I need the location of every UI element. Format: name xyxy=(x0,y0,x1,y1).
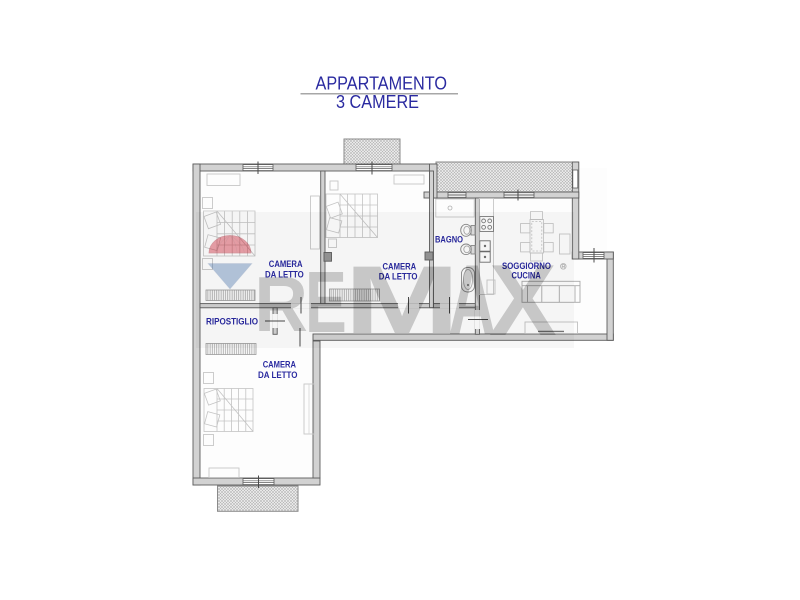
svg-text:X: X xyxy=(489,244,557,357)
svg-text:M: M xyxy=(344,247,460,354)
svg-text:R: R xyxy=(254,260,308,348)
svg-text:DA LETTO: DA LETTO xyxy=(258,370,298,380)
svg-text:CAMERA: CAMERA xyxy=(263,360,297,370)
svg-text:E: E xyxy=(305,253,347,351)
svg-text:3 CAMERE: 3 CAMERE xyxy=(336,91,419,112)
